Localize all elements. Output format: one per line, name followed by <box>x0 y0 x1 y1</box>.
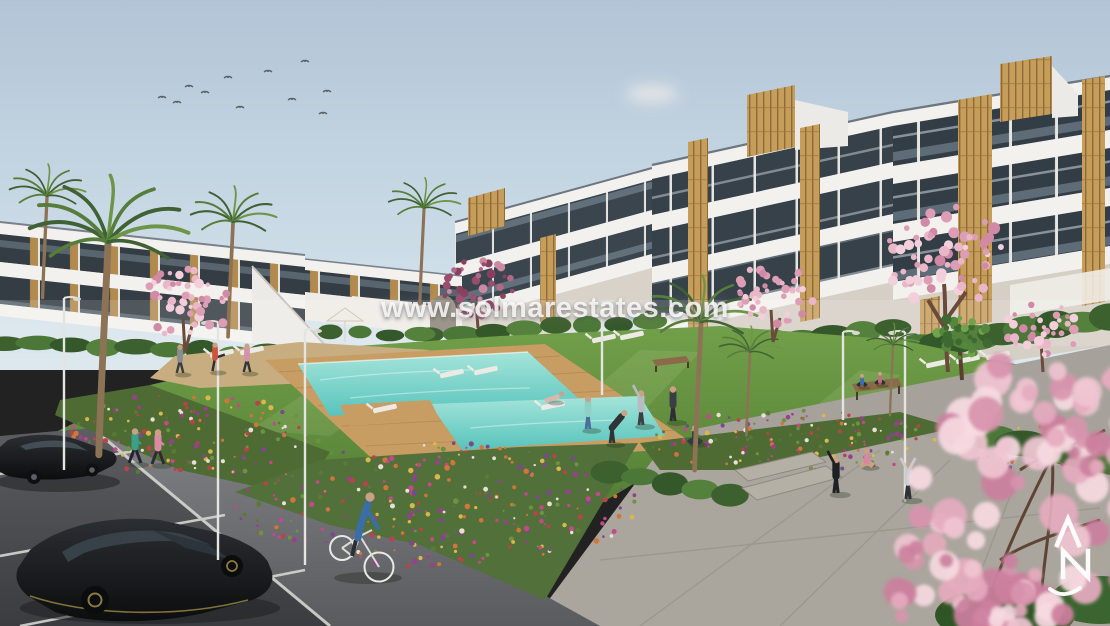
render-image: www.solmarestates.com <box>0 0 1110 626</box>
scene-canvas <box>0 0 1110 626</box>
